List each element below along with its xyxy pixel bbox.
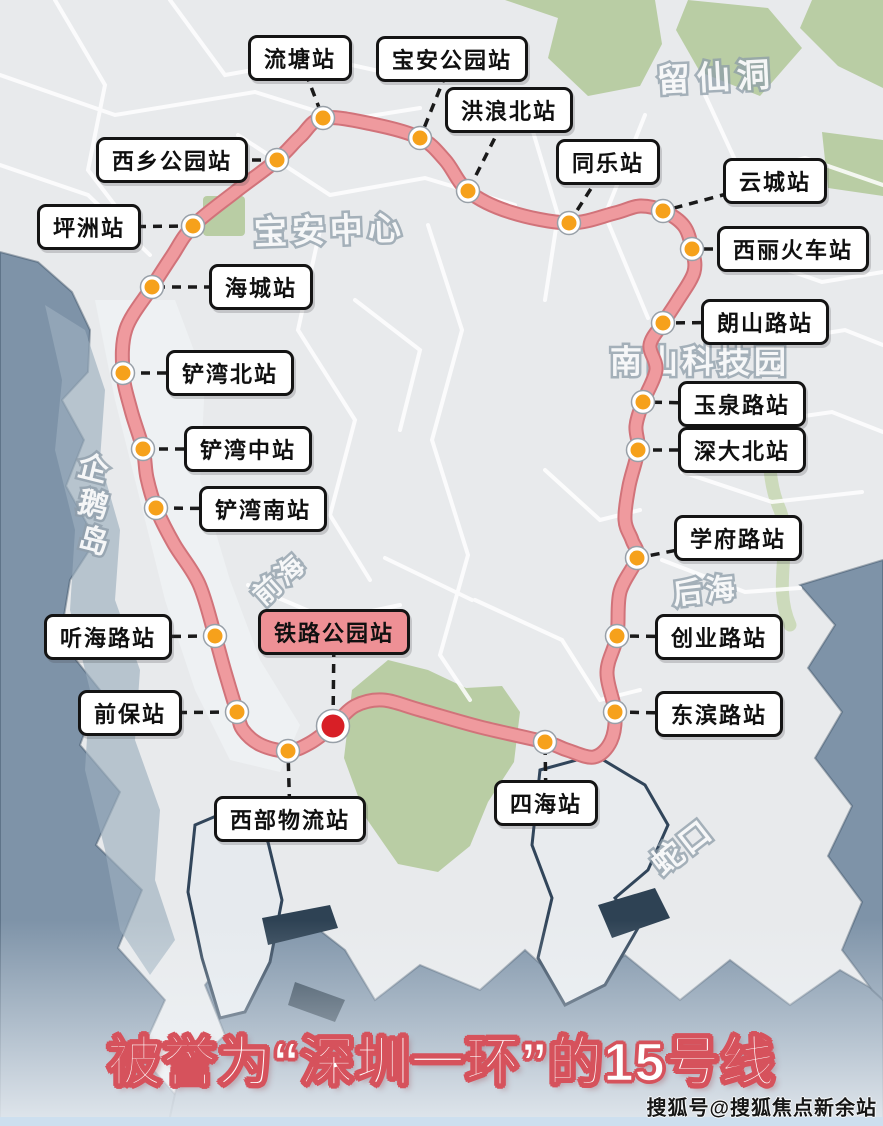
station-dot — [230, 705, 245, 720]
station-dot — [145, 280, 160, 295]
station-dot — [656, 316, 671, 331]
station-dot — [208, 629, 223, 644]
land-base — [0, 0, 883, 1126]
station-dot — [281, 744, 296, 759]
station-dot — [656, 204, 671, 219]
watermark: 搜狐号@搜狐焦点新余站 — [646, 1092, 877, 1121]
station-dot — [186, 219, 201, 234]
station-dot — [270, 153, 285, 168]
map: 宝安中心留仙洞南山科技园前海后海企鹅岛蛇口 — [0, 0, 883, 1126]
station-dot — [136, 442, 151, 457]
station-dot — [562, 216, 577, 231]
station-dot — [630, 551, 645, 566]
area-label: 南山科技园 — [610, 343, 790, 379]
station-dot — [461, 184, 476, 199]
station-dot — [636, 395, 651, 410]
area-label: 后海 — [671, 571, 740, 611]
area-label: 宝安中心 — [253, 209, 406, 251]
station-dot — [608, 705, 623, 720]
station-dot — [631, 443, 646, 458]
station-dot — [149, 501, 164, 516]
station-dot — [413, 131, 428, 146]
station-dot — [685, 242, 700, 257]
park — [822, 132, 883, 196]
station-dot-highlighted — [322, 715, 345, 738]
area-label: 留仙洞 — [656, 56, 778, 99]
station-dot — [538, 735, 553, 750]
station-dot — [116, 366, 131, 381]
station-dot — [610, 629, 625, 644]
map-title: 被誉为“深圳一环”的15号线 — [107, 1018, 775, 1097]
map-canvas: 宝安中心留仙洞南山科技园前海后海企鹅岛蛇口 流塘站宝安公园站洪浪北站同乐站云城站… — [0, 0, 883, 1126]
station-dot — [316, 111, 331, 126]
